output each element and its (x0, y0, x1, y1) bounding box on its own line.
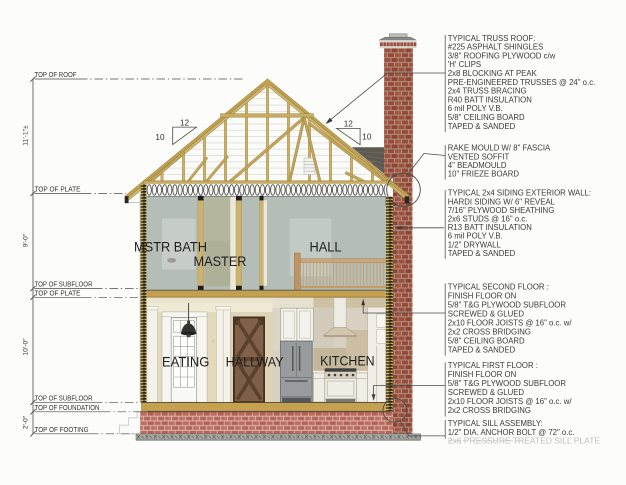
svg-text:10: 10 (362, 132, 372, 141)
svg-text:2x6 PRESSURE TREATED SILL PLAT: 2x6 PRESSURE TREATED SILL PLATE (448, 435, 601, 445)
svg-text:SCREWED & GLUED: SCREWED & GLUED (448, 309, 525, 318)
svg-text:TOP OF PLATE: TOP OF PLATE (35, 185, 81, 194)
svg-text:TAPED & SANDED: TAPED & SANDED (448, 249, 516, 258)
svg-text:10′-0″: 10′-0″ (23, 338, 30, 356)
svg-text:PRE-ENGINEERED TRUSSES @ 24" o: PRE-ENGINEERED TRUSSES @ 24" o.c. (448, 78, 595, 87)
svg-text:FINISH FLOOR ON: FINISH FLOOR ON (448, 370, 516, 379)
svg-text:SCREWED & GLUED: SCREWED & GLUED (448, 388, 525, 397)
svg-text:TYPICAL SILL ASSEMBLY:: TYPICAL SILL ASSEMBLY: (448, 419, 543, 428)
svg-text:TOP OF FOOTING: TOP OF FOOTING (35, 425, 89, 434)
svg-text:TYPICAL TRUSS ROOF:: TYPICAL TRUSS ROOF: (448, 34, 536, 43)
svg-text:2x10 FLOOR JOISTS @ 16" o.c. w: 2x10 FLOOR JOISTS @ 16" o.c. w/ (448, 397, 573, 406)
svg-text:2′-0″: 2′-0″ (23, 415, 30, 429)
svg-text:KITCHEN: KITCHEN (320, 353, 375, 369)
svg-text:TOP OF ROOF: TOP OF ROOF (35, 70, 78, 79)
svg-text:2x2 CROSS BRIDGING: 2x2 CROSS BRIDGING (448, 406, 531, 415)
svg-text:11′-1″±: 11′-1″± (23, 125, 30, 146)
svg-text:2x2 CROSS BRIDGING: 2x2 CROSS BRIDGING (448, 327, 531, 336)
svg-text:TOP OF PLATE: TOP OF PLATE (35, 289, 81, 298)
svg-text:2x4 TRUSS BRACING: 2x4 TRUSS BRACING (448, 87, 527, 96)
svg-text:#225 ASPHALT SHINGLES: #225 ASPHALT SHINGLES (448, 43, 544, 52)
svg-text:TOP OF FOUNDATION: TOP OF FOUNDATION (35, 403, 100, 412)
svg-text:2x8 BLOCKING AT PEAK: 2x8 BLOCKING AT PEAK (448, 69, 538, 78)
svg-text:TOP OF SUBFLOOR: TOP OF SUBFLOOR (35, 280, 93, 289)
svg-text:EATING: EATING (162, 354, 210, 370)
svg-text:2x10 FLOOR JOISTS @ 16" o.c. w: 2x10 FLOOR JOISTS @ 16" o.c. w/ (448, 318, 573, 327)
svg-text:FINISH FLOOR ON: FINISH FLOOR ON (448, 291, 516, 300)
svg-text:5/8" CEILING BOARD: 5/8" CEILING BOARD (448, 336, 525, 345)
svg-text:R40 BATT INSULATION: R40 BATT INSULATION (448, 95, 532, 104)
svg-text:TOP OF SUBFLOOR: TOP OF SUBFLOOR (35, 394, 93, 403)
svg-text:5/8" T&G PLYWOOD SUBFLOOR: 5/8" T&G PLYWOOD SUBFLOOR (448, 300, 567, 309)
svg-text:HALLWAY: HALLWAY (226, 354, 285, 370)
svg-text:TAPED & SANDED: TAPED & SANDED (448, 122, 516, 131)
svg-text:10" FRIEZE BOARD: 10" FRIEZE BOARD (448, 170, 520, 179)
svg-text:HALL: HALL (310, 239, 342, 255)
svg-text:TYPICAL SECOND FLOOR :: TYPICAL SECOND FLOOR : (448, 282, 549, 291)
svg-text:6 mil POLY V.B.: 6 mil POLY V.B. (448, 104, 503, 113)
svg-text:MASTER: MASTER (194, 253, 247, 269)
svg-text:5/8" CEILING BOARD: 5/8" CEILING BOARD (448, 113, 525, 122)
svg-text:12: 12 (344, 120, 354, 129)
svg-text:'H' CLIPS: 'H' CLIPS (448, 60, 481, 69)
svg-text:TYPICAL FIRST FLOOR :: TYPICAL FIRST FLOOR : (448, 361, 538, 370)
svg-text:9′-0″: 9′-0″ (23, 233, 30, 247)
svg-text:10: 10 (155, 133, 165, 142)
svg-text:3/8" ROOFING PLYWOOD c/w: 3/8" ROOFING PLYWOOD c/w (448, 51, 556, 60)
svg-text:TAPED & SANDED: TAPED & SANDED (448, 345, 516, 354)
svg-text:5/8" T&G PLYWOOD SUBFLOOR: 5/8" T&G PLYWOOD SUBFLOOR (448, 379, 567, 388)
svg-text:12: 12 (180, 119, 190, 128)
